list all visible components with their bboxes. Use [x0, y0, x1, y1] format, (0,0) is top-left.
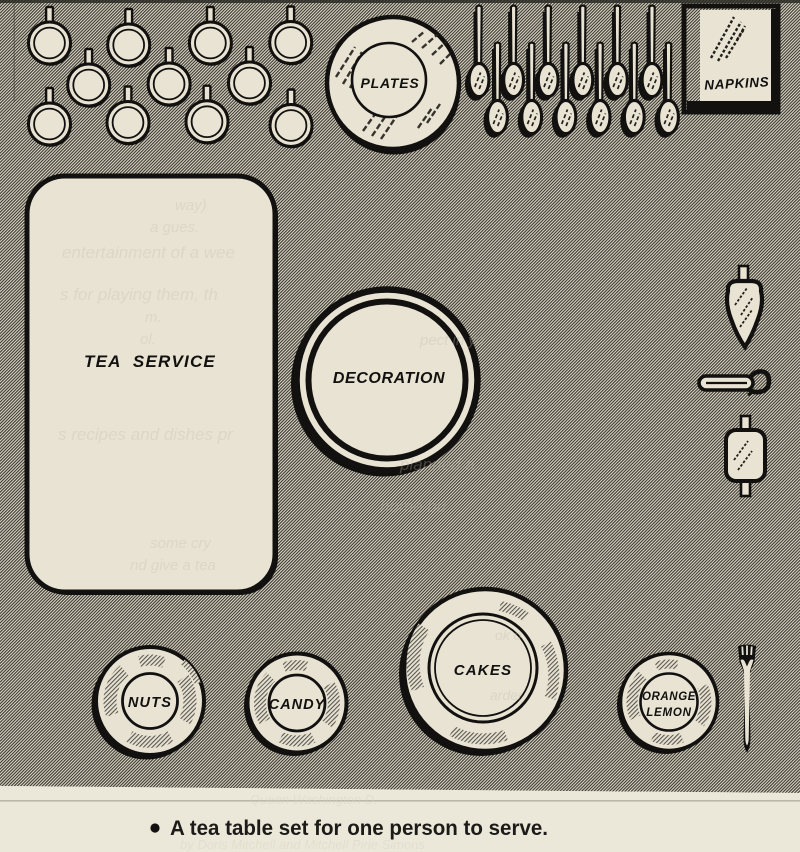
svg-text:TEA SERVICE: TEA SERVICE: [84, 352, 216, 371]
svg-text:CAKES: CAKES: [454, 662, 513, 679]
svg-text:ok o: ok o: [495, 627, 522, 643]
svg-text:arder: arder: [490, 687, 524, 703]
svg-text:way): way): [175, 197, 207, 214]
svg-text:ORANGE: ORANGE: [642, 691, 696, 703]
svg-text:CANDY: CANDY: [269, 697, 326, 713]
svg-text:pect in yo: pect in yo: [419, 332, 484, 349]
svg-text:Queen Washington D.: Queen Washington D.: [250, 792, 378, 807]
svg-text:m.: m.: [145, 309, 162, 326]
svg-text:planned a: planned a: [399, 455, 475, 474]
svg-text:PLATES: PLATES: [361, 75, 420, 91]
svg-text:NUTS: NUTS: [128, 695, 172, 711]
svg-text:nd give a tea: nd give a tea: [130, 557, 216, 574]
svg-text:A tea table set for one person: A tea table set for one person to serve.: [170, 816, 548, 840]
svg-text:home bu: home bu: [380, 497, 447, 516]
svg-text:DECORATION: DECORATION: [333, 370, 445, 387]
svg-text:LEMON: LEMON: [646, 707, 692, 719]
svg-text:entertainment of a wee: entertainment of a wee: [62, 243, 235, 262]
svg-text:some cry: some cry: [150, 535, 212, 552]
svg-text:a gues.: a gues.: [150, 219, 199, 236]
svg-text:s recipes and dishes pr: s recipes and dishes pr: [58, 425, 234, 444]
svg-text:s for playing them, th: s for playing them, th: [60, 285, 218, 304]
svg-text:ol.: ol.: [140, 331, 156, 348]
